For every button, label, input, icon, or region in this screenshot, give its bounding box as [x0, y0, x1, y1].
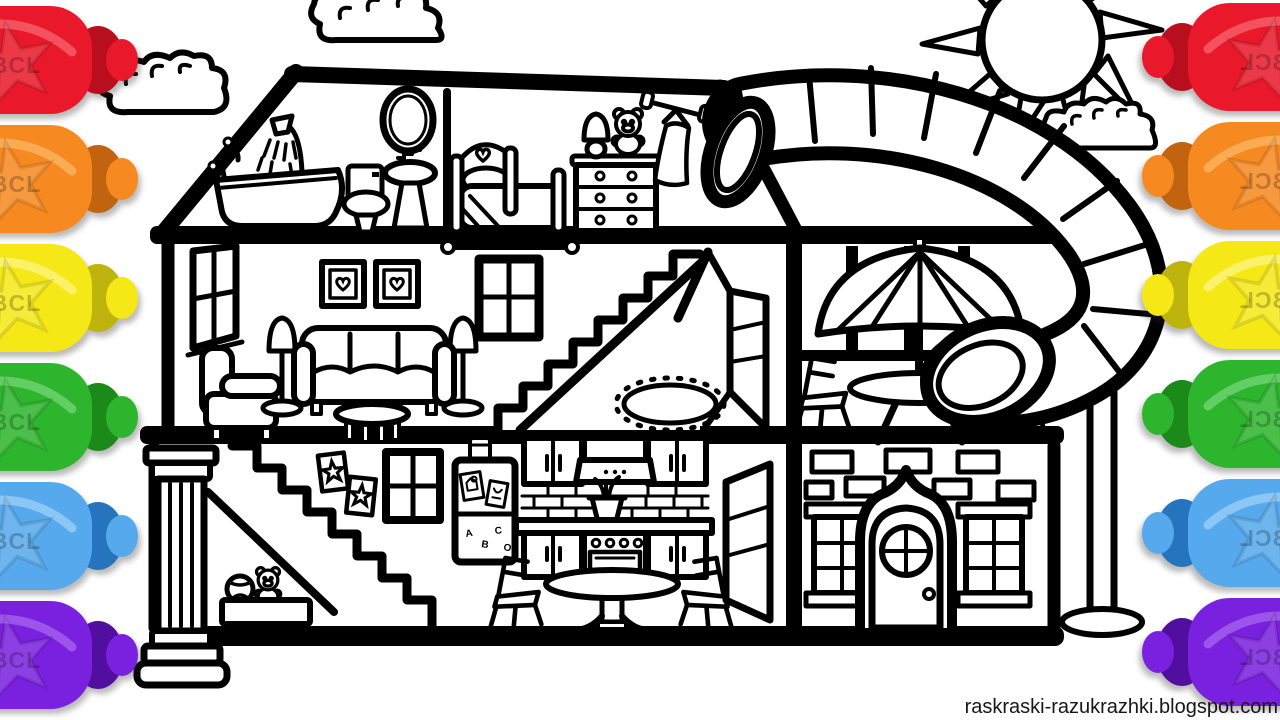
star-picture-1	[318, 453, 348, 492]
kitchen-table	[546, 570, 678, 630]
marker-brand-text: BCL	[1239, 406, 1280, 432]
toilet	[344, 166, 388, 232]
marker-orange-left: BCL	[0, 125, 138, 233]
marker-pens-right: BCL BCL BCL BCL BCL BCL	[1142, 3, 1280, 706]
dresser	[572, 156, 660, 231]
armchair	[202, 348, 280, 440]
picture-frame-1	[322, 262, 364, 306]
hood-cabinet	[584, 438, 646, 460]
back-window	[479, 259, 539, 337]
marker-brand-text: BCL	[0, 528, 41, 554]
fridge-magnet-letter: C	[494, 525, 502, 537]
watermark: raskraski-razukrazhki.blogspot.com	[965, 696, 1278, 718]
patio-chair-left	[797, 358, 849, 428]
coloring-page: A B C O	[0, 0, 1280, 720]
door-knob	[924, 589, 934, 599]
cloud-top	[311, 0, 441, 40]
marker-brand-text: BCL	[0, 409, 41, 435]
marker-green-left: BCL	[0, 363, 138, 471]
marker-brand-text: BCL	[1239, 287, 1280, 313]
marker-brand-text: BCL	[0, 647, 41, 673]
picture-frame-2	[376, 262, 418, 306]
fridge: A B C O	[455, 438, 515, 562]
marker-blue-left: BCL	[0, 482, 138, 590]
bed	[451, 145, 564, 232]
kitchen-door	[726, 464, 770, 620]
shower	[258, 116, 302, 176]
star-picture-2	[346, 477, 376, 516]
marker-brand-text: BCL	[0, 290, 41, 316]
facade-window-right	[958, 504, 1030, 606]
marker-purple-left: BCL	[0, 601, 138, 709]
marker-brand-text: BCL	[1239, 525, 1280, 551]
marker-orange-right: BCL	[1142, 122, 1280, 230]
attic-bedroom	[451, 91, 712, 232]
marker-brand-text: BCL	[1239, 168, 1280, 194]
marker-blue-right: BCL	[1142, 479, 1280, 587]
teddy-bear	[613, 109, 644, 154]
attic-bathroom	[209, 89, 435, 239]
marker-red-right: BCL	[1142, 3, 1280, 111]
front-door	[860, 470, 952, 628]
bathroom-sink	[385, 150, 435, 228]
side-window	[188, 246, 242, 355]
table-lamp	[584, 114, 608, 157]
marker-brand-text: BCL	[1239, 49, 1280, 75]
marker-green-right: BCL	[1142, 360, 1280, 468]
kitchen	[491, 438, 770, 630]
marker-brand-text: BCL	[0, 171, 41, 197]
marker-purple-right: BCL	[1142, 598, 1280, 706]
marker-yellow-left: BCL	[0, 244, 138, 352]
brick-facade	[806, 450, 1034, 628]
slide-pole	[1062, 392, 1142, 635]
marker-brand-text: BCL	[0, 52, 41, 78]
bathroom-mirror	[383, 89, 433, 151]
playroom-window	[386, 452, 440, 520]
marker-brand-text: BCL	[1239, 644, 1280, 670]
